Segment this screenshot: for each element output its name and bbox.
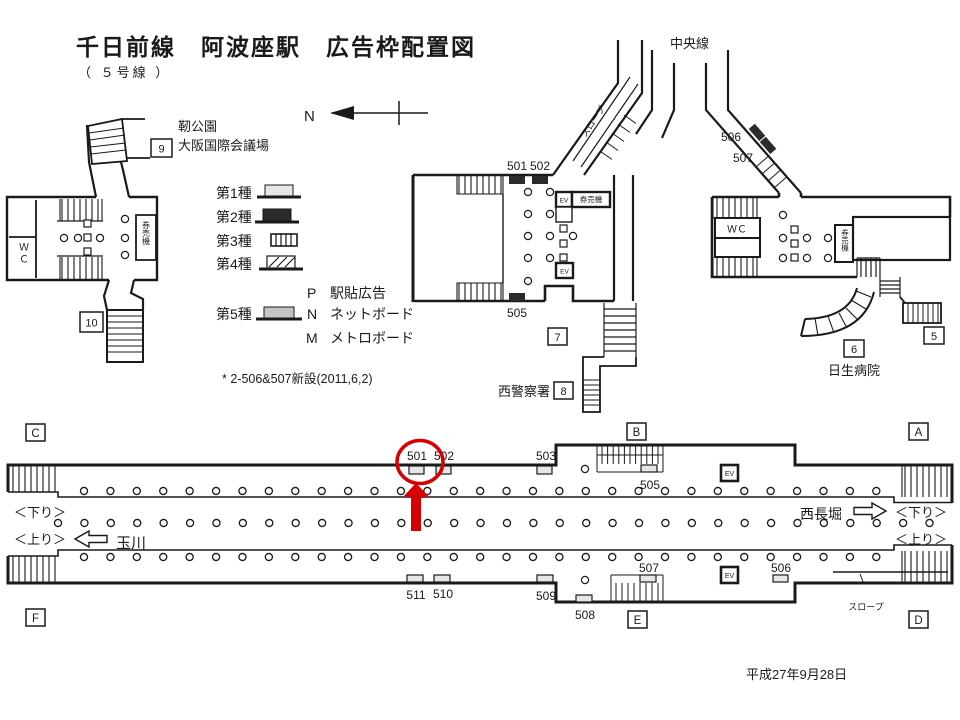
center-room-small [556,207,572,222]
pillar-square [560,240,567,247]
chuo-corridor-east [706,50,801,193]
platform-ev-lower-label: EV [725,573,735,580]
legend-m-code: M [306,330,318,346]
pillar [803,254,810,261]
legend-type5-swatch [264,307,294,318]
west-room-dividers [9,200,36,278]
upper-platform-east-stairs [902,465,947,497]
west-landmark-line1: 靭公園 [178,119,217,134]
east-stairs-upper [713,198,757,218]
pillar-square [791,254,798,261]
platform-ad-509 [537,575,553,582]
center-stairs-lower [457,283,503,301]
east-exit-stairs-b [880,277,900,297]
pillar-square [84,220,91,227]
center-ad-501 [509,176,525,184]
platform-ad-507-label: 507 [639,561,659,575]
pillar [779,211,786,218]
pillar-square [84,234,91,241]
down-right-label: ＜下り＞ [895,505,947,520]
center-ad-501-label: 501 [507,159,527,173]
center-police-label: 西警察署 [498,384,550,399]
center-slope-ramp [573,77,638,167]
corner-e-label: E [634,615,642,627]
legend-n-label: ネットボード [330,306,414,322]
pillar [824,254,831,261]
center-exit-stairs [604,303,636,357]
legend-type4-label: 第4種 [216,256,252,272]
legend-type2-label: 第2種 [216,209,252,225]
north-arrowhead-icon [330,106,354,120]
center-exit7-label: 7 [554,332,560,344]
center-stairs-upper [457,176,503,194]
down-left-label: ＜下り＞ [14,505,66,520]
compass-north-label: N [304,108,315,125]
pillar [524,232,531,239]
center-ad-502 [532,176,548,184]
center-slope-stairs [600,115,636,160]
east-room [715,238,760,257]
legend-n-code: N [307,306,317,322]
east-exit5-stair-treads [908,303,938,323]
corner-c-label: C [31,428,39,440]
east-ad-507-label: 507 [733,151,753,165]
center-ad-505 [509,293,525,301]
pillar [524,188,531,195]
pillar [74,234,81,241]
pillar [524,277,531,284]
pillar [581,465,588,472]
east-right-room [853,217,950,260]
platform-ad-511-label: 511 [406,588,425,602]
center-ad-505-label: 505 [507,306,527,320]
east-ad-507 [760,137,777,154]
pillar [581,576,588,583]
east-exit5-label: 5 [931,331,937,343]
legend-type3-label: 第3種 [216,233,252,249]
legend-p-code: P [307,285,316,301]
platform-ad-503 [537,466,552,474]
platform-ad-511 [407,575,423,582]
legend-type1-label: 第1種 [216,185,252,201]
page-subtitle: （ ５号線 ） [78,65,171,80]
compass: N [304,101,428,125]
nishinagahori-label: 西長堀 [800,506,842,522]
legend-type5-label: 第5種 [216,306,252,322]
station-ad-layout-diagram: 千日前線 阿波座駅 広告枠配置図 （ ５号線 ） N 第1種 第2種 第3種 第… [0,0,960,720]
east-exit5-stairs [903,303,941,323]
pillar [524,210,531,217]
west-north-stairs [88,119,127,164]
corner-f-label: F [32,613,39,625]
legend-type2-swatch [263,209,291,221]
lower-platform-east-stairs [902,551,947,583]
platform-ev-upper-label: EV [725,471,735,478]
platform-ad-501 [409,466,424,474]
pillar-square [791,240,798,247]
pillar [121,251,128,258]
center-exit8-label: 8 [560,386,566,398]
pillar [546,210,553,217]
platform-ad-509-label: 509 [536,589,556,603]
east-wc-label: ＷＣ [727,225,747,236]
platform-ad-506-label: 506 [771,561,791,575]
pillar [60,234,67,241]
corner-a-label: A [915,427,923,439]
platform-ad-508 [576,595,592,602]
right-arrow-icon [854,503,886,519]
center-ev-upper-label: EV [560,198,569,205]
pillar [546,188,553,195]
legend-note: * 2-506&507新設(2011,6,2) [222,371,373,386]
legend-type3-swatch [271,234,297,246]
center-ev-lower-label: EV [560,269,569,276]
platform-ad-501-label: 501 [407,449,427,463]
corner-b-label: B [633,427,641,439]
east-stairs-lower [713,257,757,277]
center-ticket-label: 券売機 [580,194,603,204]
center-slope-label: スロープ [579,104,607,139]
west-south-corridor [104,280,143,310]
platform-ad-510 [434,575,450,582]
east-ad-506 [749,124,766,141]
pillar [569,232,576,239]
legend-p-label: 駅貼広告 [330,285,386,301]
east-ticket-label: 券売機 [840,228,849,253]
legend-m-label: メトロボード [330,330,414,346]
center-east-corridor [614,175,633,301]
platform-ad-505 [641,465,657,472]
page-title: 千日前線 阿波座駅 広告枠配置図 [76,34,476,60]
west-exit10-label: 10 [85,318,97,330]
chuo-line-label: 中央線 [670,36,709,51]
platform-ad-503-label: 503 [536,449,556,463]
up-left-label: ＜上り＞ [14,532,66,547]
west-stairs-upper [60,199,102,221]
west-ticket-label: 券売機 [142,220,151,246]
platform-slope-label: スロープ [848,602,883,612]
pillar-square [84,248,91,255]
west-wc-label: ＷＣ [17,242,29,266]
platform-ad-505-label: 505 [640,478,660,492]
east-concourse-map: 506 507 ＷＣ 券売機 5 6 日生病院 [712,124,950,378]
pillar [121,234,128,241]
corner-d-label: D [914,615,922,627]
east-hospital-label: 日生病院 [828,363,880,378]
pillar [779,254,786,261]
west-stairs-lower [60,257,102,279]
center-ad-502-label: 502 [530,159,550,173]
legend-type1-swatch [265,185,293,196]
platform-ad-508-label: 508 [575,608,595,622]
west-south-stairs [107,310,143,362]
east-exit6-label: 6 [851,344,857,356]
pillar [824,234,831,241]
title-block: 千日前線 阿波座駅 広告枠配置図 （ ５号線 ） [76,34,476,80]
center-exit8-stair-treads [583,380,600,405]
pillar [779,234,786,241]
pillar-square [560,254,567,261]
date-label: 平成27年9月28日 [746,667,847,682]
west-exit9-label: 9 [158,144,164,156]
west-landmark-line2: 大阪国際会議場 [178,138,269,153]
platform-ad-506 [773,575,788,582]
pillar-square [560,225,567,232]
platform-ad-507 [640,575,656,582]
legend: 第1種 第2種 第3種 第4種 P 駅貼広告 第5種 N ネットボード M メト… [216,185,414,386]
pillar [803,234,810,241]
pillar [546,232,553,239]
pillar [524,254,531,261]
east-ad-506-label: 506 [721,130,741,144]
east-curved-stairs [801,288,874,336]
pillar [121,215,128,222]
left-arrow-icon [75,531,107,547]
pillar [96,234,103,241]
pillar [546,254,553,261]
lower-platform-west-stairs [13,556,55,583]
platform-ad-510-label: 510 [433,587,453,601]
platform-diagram: EV 501 502 503 505 ＜下り＞ ＜上り＞ ＜下り＞ ＜上り＞ 玉… [8,423,952,628]
upper-platform-west-stairs [13,465,55,492]
pillar-square [791,226,798,233]
